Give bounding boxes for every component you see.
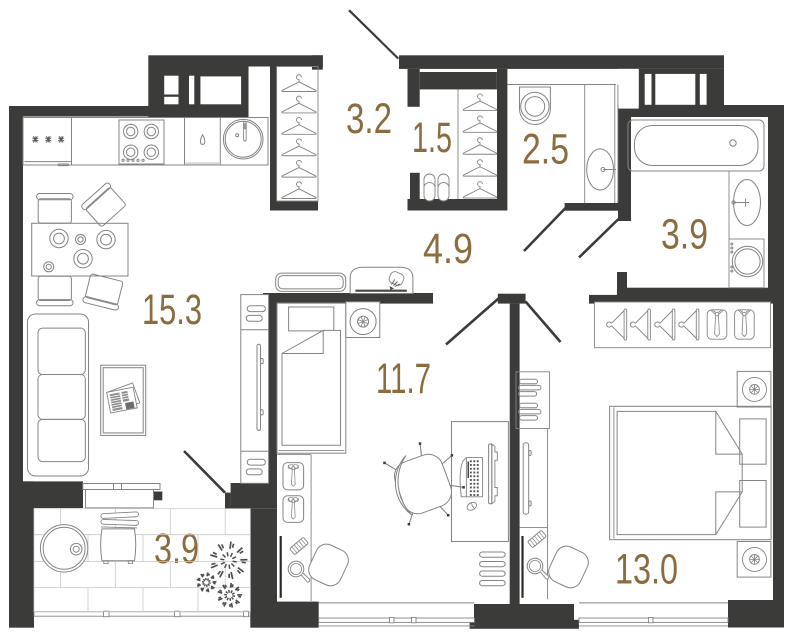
svg-text:4.9: 4.9 xyxy=(423,225,473,273)
svg-text:1.5: 1.5 xyxy=(412,114,452,162)
svg-text:15.3: 15.3 xyxy=(142,286,202,334)
svg-text:2.5: 2.5 xyxy=(522,126,569,174)
svg-text:3.9: 3.9 xyxy=(661,211,708,259)
svg-text:13.0: 13.0 xyxy=(615,546,678,594)
svg-text:3.2: 3.2 xyxy=(346,95,392,143)
svg-text:3.9: 3.9 xyxy=(154,525,199,573)
svg-text:11.7: 11.7 xyxy=(376,355,431,403)
